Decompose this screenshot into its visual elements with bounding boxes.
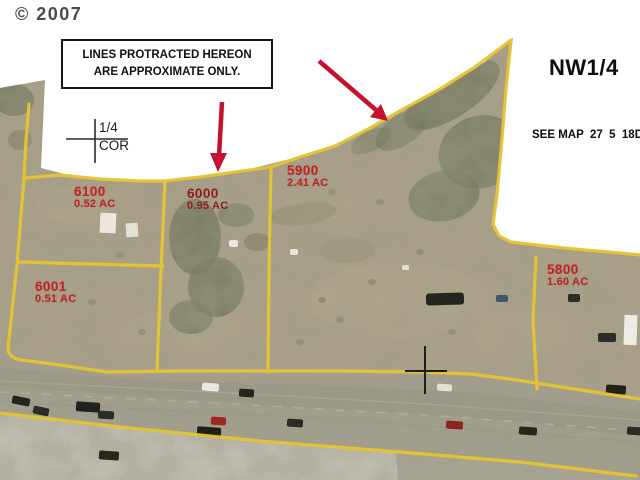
parcel-label-5800: 5800 1.60 AC bbox=[547, 263, 588, 288]
red-arrow-icon-1 bbox=[210, 102, 227, 172]
parcel-label-6000: 6000 0.95 AC bbox=[187, 187, 228, 212]
disclaimer-box: LINES PROTRACTED HEREON ARE APPROXIMATE … bbox=[61, 39, 273, 89]
quarter-corner-label: 1/4 COR bbox=[99, 119, 129, 154]
parcel-number: 6000 bbox=[187, 187, 228, 201]
plat-map: © 2007 LINES PROTRACTED HEREON ARE APPRO… bbox=[0, 0, 640, 480]
see-map-reference: SEE MAP 27 5 18Dc bbox=[532, 129, 640, 141]
parcel-acreage: 0.51 AC bbox=[35, 294, 76, 305]
quadrant-label: NW1/4 bbox=[549, 55, 619, 81]
parcel-label-5900: 5900 2.41 AC bbox=[287, 164, 328, 189]
parcel-number: 5800 bbox=[547, 263, 588, 277]
red-arrow-icon-2 bbox=[319, 61, 388, 121]
parcel-label-6001: 6001 0.51 AC bbox=[35, 280, 76, 305]
copyright-text: © 2007 bbox=[15, 4, 82, 25]
parcel-acreage: 0.95 AC bbox=[187, 201, 228, 212]
parcel-acreage: 1.60 AC bbox=[547, 277, 588, 288]
disclaimer-line1: LINES PROTRACTED HEREON bbox=[67, 47, 267, 64]
parcel-acreage: 0.52 AC bbox=[74, 199, 115, 210]
parcel-number: 6001 bbox=[35, 280, 76, 294]
parcel-number: 5900 bbox=[287, 164, 328, 178]
parcel-acreage: 2.41 AC bbox=[287, 178, 328, 189]
parcel-number: 6100 bbox=[74, 185, 115, 199]
parcel-label-6100: 6100 0.52 AC bbox=[74, 185, 115, 210]
disclaimer-line2: ARE APPROXIMATE ONLY. bbox=[67, 64, 267, 81]
